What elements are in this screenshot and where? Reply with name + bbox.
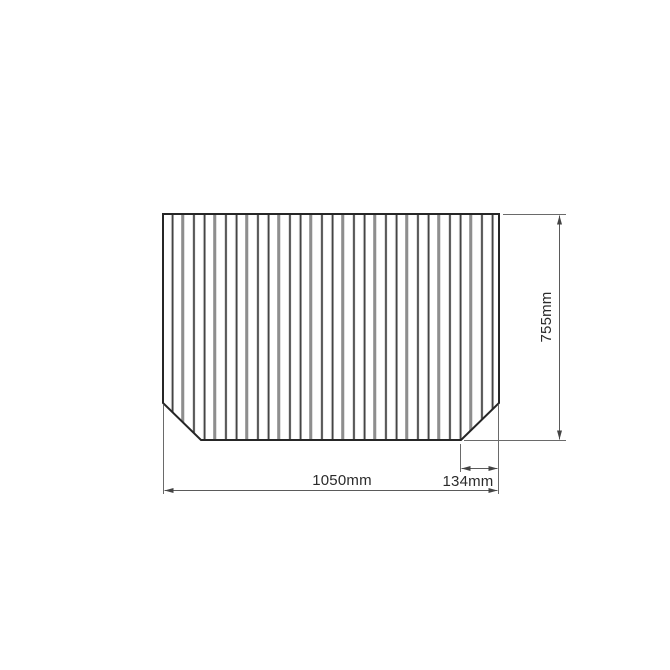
drawing-page: 755mm 1050mm 134mm — [0, 0, 670, 670]
dimension-label-chamfer: 134mm — [442, 473, 493, 490]
dimension-drawing-canvas: 755mm 1050mm 134mm — [0, 0, 670, 670]
panel-drawing — [163, 214, 499, 440]
dimension-label-height: 755mm — [538, 291, 555, 342]
panel-slats — [163, 214, 499, 440]
dimension-chamfer: 134mm — [442, 444, 497, 490]
dimension-label-width: 1050mm — [312, 472, 372, 489]
